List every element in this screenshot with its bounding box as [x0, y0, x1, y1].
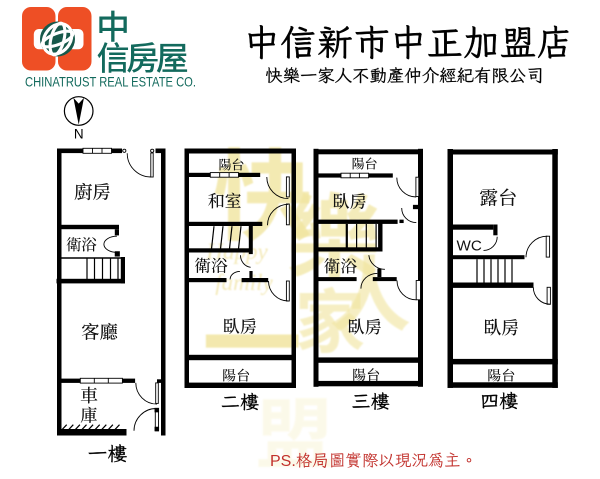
- svg-text:客廳: 客廳: [81, 319, 118, 345]
- svg-text:露台: 露台: [479, 184, 517, 211]
- svg-text:廚房: 廚房: [74, 179, 111, 205]
- svg-text:陽台: 陽台: [222, 366, 250, 386]
- svg-text:CHINATRUST REAL ESTATE CO.: CHINATRUST REAL ESTATE CO.: [25, 74, 196, 90]
- svg-text:衛浴: 衛浴: [324, 253, 358, 277]
- svg-text:快樂一家人不動產仲介經紀有限公司: 快樂一家人不動產仲介經紀有限公司: [265, 64, 543, 87]
- svg-text:衛浴: 衛浴: [66, 233, 98, 255]
- svg-text:陽台: 陽台: [218, 154, 244, 173]
- svg-text:中信新市中正加盟店: 中信新市中正加盟店: [244, 19, 573, 66]
- svg-text:PS.格局圖實際以現況為主。: PS.格局圖實際以現況為主。: [270, 449, 477, 471]
- svg-text:臥房: 臥房: [223, 313, 257, 338]
- svg-text:臥房: 臥房: [333, 187, 367, 212]
- svg-text:衛浴: 衛浴: [195, 253, 229, 277]
- svg-text:庫: 庫: [80, 403, 98, 428]
- svg-text:一樓: 一樓: [88, 440, 128, 467]
- svg-text:陽台: 陽台: [352, 154, 378, 173]
- svg-text:WC: WC: [457, 237, 482, 254]
- svg-text:三樓: 三樓: [351, 389, 389, 414]
- svg-text:和室: 和室: [208, 187, 242, 212]
- svg-text:二樓: 二樓: [221, 389, 259, 414]
- svg-text:臥房: 臥房: [348, 313, 382, 338]
- svg-text:四樓: 四樓: [480, 388, 518, 413]
- svg-text:臥房: 臥房: [483, 314, 519, 340]
- svg-text:N: N: [74, 127, 84, 142]
